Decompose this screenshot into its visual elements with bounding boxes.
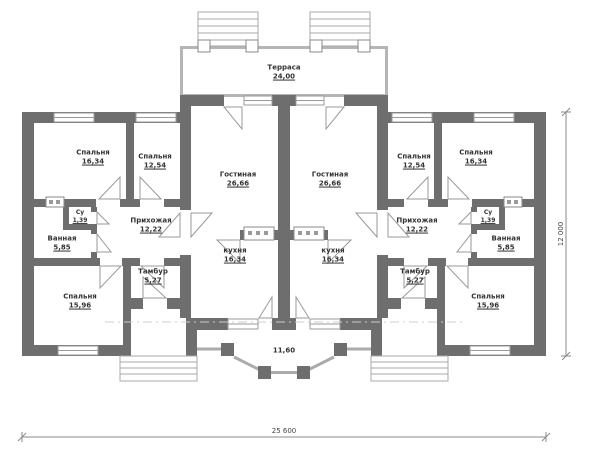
floor-plan-stage: Терраса 24,00 Спальня 16,34 Спальня 12,5… [0,0,600,451]
room-label-living-right: Гостиная 26,66 [312,171,348,190]
outer-walls [22,95,546,356]
dim-depth-label: 12 000 [557,222,565,247]
room-label-bedroom-3-right: Спальня 15,96 [471,293,505,312]
room-label-kitchen-right: кухня 16,34 [321,247,344,266]
room-label-hallway-right: Прихожая 12,22 [396,217,437,236]
stairs-bottom-right [371,356,448,381]
room-label-living-left: Гостиная 26,66 [220,171,256,190]
room-label-bathroom-left: Ванная 5,85 [48,235,77,254]
room-label-wc-left: Су 1,39 [73,209,88,225]
room-label-bedroom-1-left: Спальня 16,34 [76,149,110,168]
kitchen-counter-right [294,227,324,240]
room-label-bedroom-3-left: Спальня 15,96 [63,293,97,312]
room-label-hallway-left: Прихожая 12,22 [130,217,171,236]
room-label-vestibule-right: Тамбур 5,27 [400,268,430,287]
dim-width-label: 25 600 [272,427,297,435]
stairs-bottom-left [120,356,197,381]
room-label-vestibule-left: Тамбур 5,27 [138,268,168,287]
porch-width-label: 11,60 [273,346,295,355]
vent-icon-left [46,197,64,207]
room-label-bedroom-2-left: Спальня 12,54 [138,153,172,172]
terrace-label: Терраса 24,00 [267,64,300,83]
room-label-bedroom-1-right: Спальня 16,34 [459,149,493,168]
room-label-bedroom-2-right: Спальня 12,54 [397,153,431,172]
kitchen-counter-left [244,227,274,240]
vent-icon-right [504,197,522,207]
room-label-kitchen-left: кухня 16,34 [223,247,246,266]
room-label-wc-right: Су 1,39 [481,209,496,225]
room-label-bathroom-right: Ванная 5,85 [492,235,521,254]
